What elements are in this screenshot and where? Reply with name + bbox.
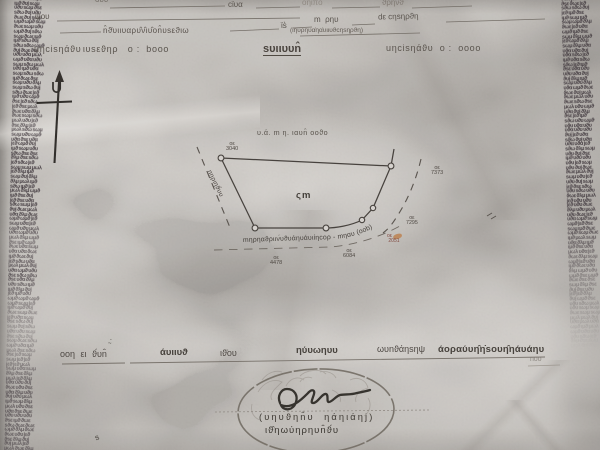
svg-text:mηρηαϑριιν́υϑυάηυάυιίηcορ -: mηρηαϑριιν́υϑυάηυάυιίηcορ - mηαυ (oοb… xyxy=(243,224,374,244)
